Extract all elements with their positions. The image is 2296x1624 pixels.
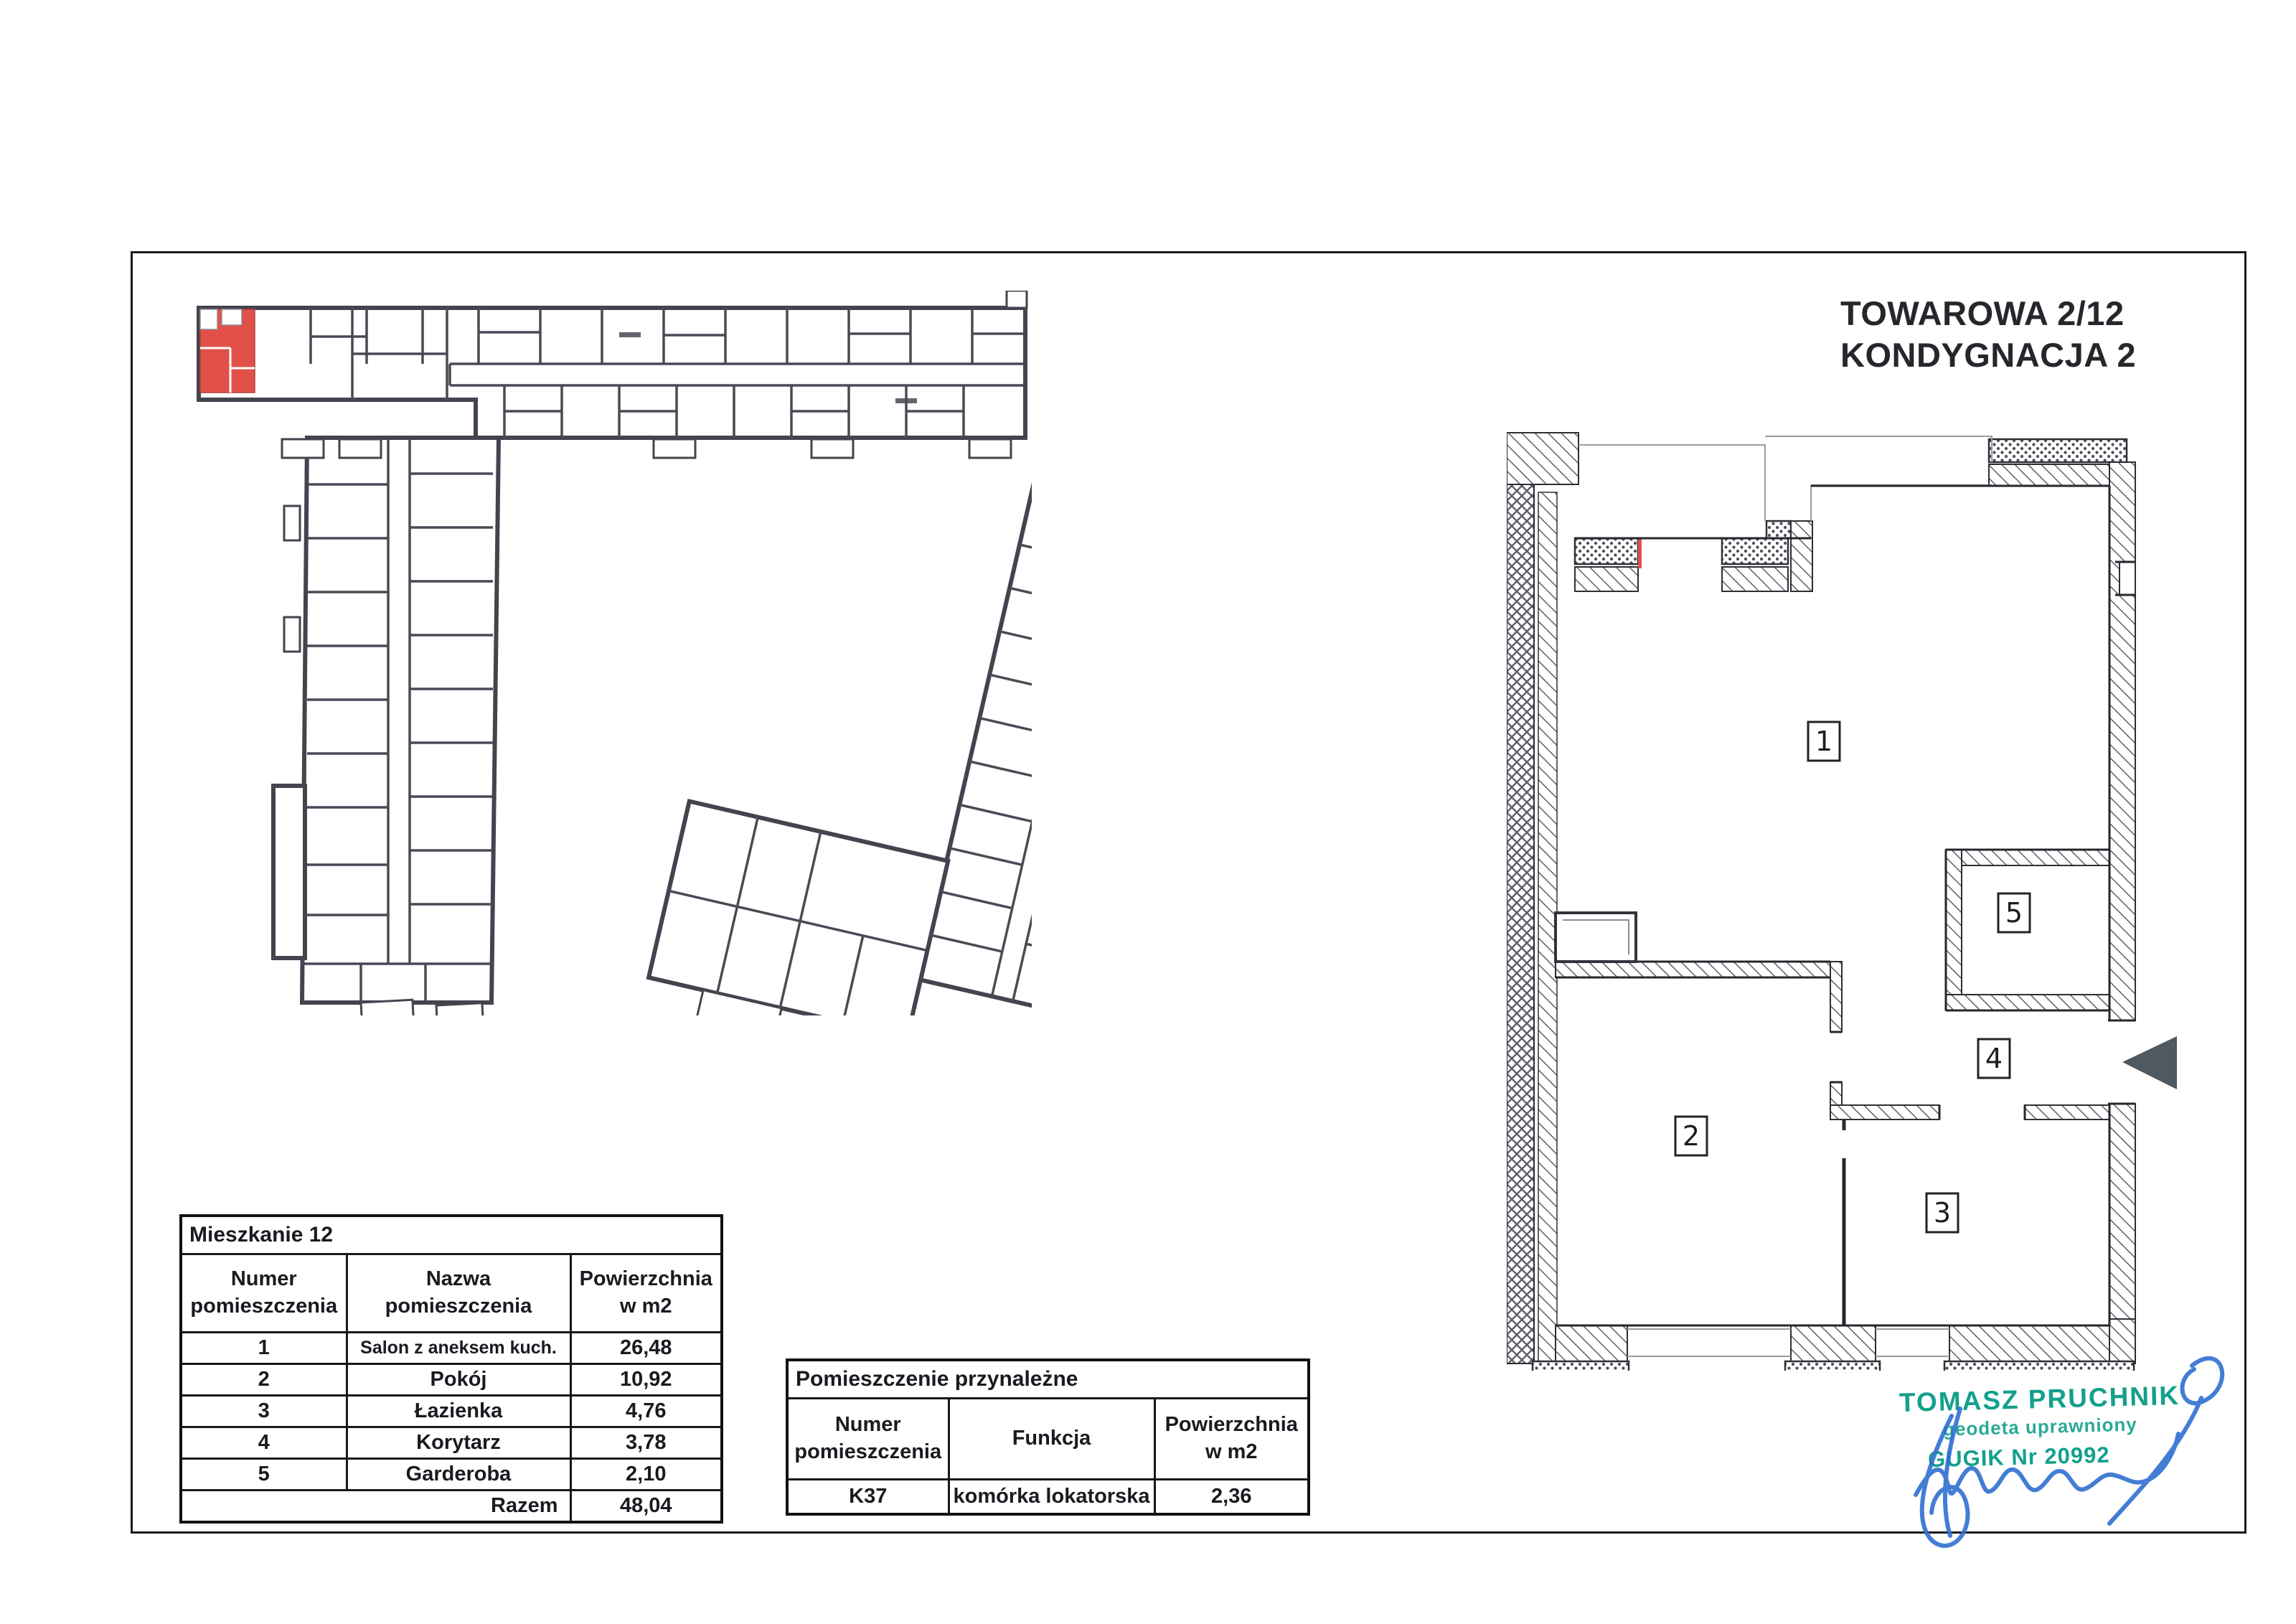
room-number-3: 3	[1926, 1193, 1958, 1232]
wall	[1946, 995, 2109, 1010]
col-header-pow: Powierzchnia w m2	[1154, 1399, 1309, 1480]
signature-scribble	[1865, 1348, 2267, 1585]
svg-text:1: 1	[1815, 726, 1832, 757]
wall	[2109, 1104, 2135, 1319]
cell-pow: 3,78	[570, 1427, 722, 1459]
cell-nazwa: Łazienka	[347, 1396, 570, 1427]
red-jamb-mark	[1638, 538, 1642, 568]
cell-nazwa: Pokój	[347, 1364, 570, 1396]
table-title: Mieszkanie 12	[181, 1216, 722, 1254]
wall	[2109, 462, 2135, 1020]
wall	[1791, 521, 1812, 591]
svg-text:5: 5	[2005, 897, 2023, 929]
svg-text:4: 4	[1985, 1043, 2003, 1074]
wall-recess	[2119, 562, 2135, 595]
col-header-numer: Numer pomieszczenia	[787, 1399, 949, 1480]
wall	[1556, 1325, 1627, 1361]
cell-pow: 2,10	[570, 1459, 722, 1491]
cell-pow: 4,76	[570, 1396, 722, 1427]
wall	[1830, 1105, 1939, 1120]
col-header-pow: Powierzchnia w m2	[570, 1254, 722, 1333]
wall	[1507, 433, 1578, 484]
cell-pow: 2,36	[1154, 1480, 1309, 1515]
cell-pow: 26,48	[570, 1333, 722, 1364]
wall	[2025, 1105, 2109, 1120]
col-header-funkcja: Funkcja	[949, 1399, 1154, 1480]
table-row: 3 Łazienka 4,76	[181, 1396, 722, 1427]
table-total-row: Razem 48,04	[181, 1491, 722, 1523]
window-sill	[1575, 538, 1638, 564]
table-row: 5 Garderoba 2,10	[181, 1459, 722, 1491]
staircase-label-smudge	[895, 398, 917, 403]
cell-nr: 2	[181, 1364, 347, 1396]
wall	[1575, 567, 1638, 591]
razem-label: Razem	[181, 1491, 570, 1523]
shaft-niche	[1556, 913, 1636, 962]
cell-nr: K37	[787, 1480, 949, 1515]
cell-nr: 3	[181, 1396, 347, 1427]
razem-value: 48,04	[570, 1491, 722, 1523]
apartment-rooms-table: Mieszkanie 12 Numer pomieszczenia Nazwa …	[179, 1214, 723, 1524]
ancillary-room-table: Pomieszczenie przynależne Numer pomieszc…	[786, 1358, 1310, 1516]
col-header-nazwa: Nazwa pomieszczenia	[347, 1254, 570, 1333]
wall	[1791, 1325, 1876, 1361]
svg-text:2: 2	[1683, 1120, 1700, 1152]
cell-nr: 4	[181, 1427, 347, 1459]
window-sill	[1722, 538, 1788, 564]
svg-text:3: 3	[1934, 1197, 1951, 1229]
wall	[1989, 464, 2125, 486]
table-row: 2 Pokój 10,92	[181, 1364, 722, 1396]
staircase-label-smudge	[619, 332, 641, 337]
wall	[1946, 850, 1962, 1010]
window-sill	[1766, 521, 1791, 538]
cell-nazwa: Salon z aneksem kuch.	[347, 1333, 570, 1364]
room-number-4: 4	[1978, 1039, 2010, 1078]
table-row: K37 komórka lokatorska 2,36	[787, 1480, 1309, 1515]
col-header-numer: Numer pomieszczenia	[181, 1254, 347, 1333]
cell-nr: 5	[181, 1459, 347, 1491]
title-address: TOWAROWA 2/12	[1840, 293, 2136, 334]
wall	[1556, 962, 1830, 977]
wall	[1507, 484, 1534, 1363]
cell-nazwa: Garderoba	[347, 1459, 570, 1491]
cell-nr: 1	[181, 1333, 347, 1364]
table-row: 1 Salon z aneksem kuch. 26,48	[181, 1333, 722, 1364]
cell-nazwa: Korytarz	[347, 1427, 570, 1459]
wall	[1946, 850, 2109, 865]
table-title: Pomieszczenie przynależne	[787, 1360, 1309, 1399]
entrance-arrow-icon	[2122, 1036, 2177, 1089]
page-title: TOWAROWA 2/12 KONDYGNACJA 2	[1840, 293, 2136, 376]
highlighted-unit	[200, 309, 255, 393]
cell-funkcja: komórka lokatorska	[949, 1480, 1154, 1515]
cell-pow: 10,92	[570, 1364, 722, 1396]
building-overview-plan	[189, 291, 1032, 1015]
room-number-5: 5	[1998, 893, 2030, 932]
window-sill	[1533, 1361, 1629, 1371]
room-number-1: 1	[1808, 722, 1840, 761]
apartment-detail-plan: 1 2 3 4 5	[1507, 431, 2210, 1371]
title-storey: KONDYGNACJA 2	[1840, 334, 2136, 376]
scanned-floor-plan-page: TOWAROWA 2/12 KONDYGNACJA 2	[0, 0, 2296, 1624]
wall	[1722, 567, 1788, 591]
room-number-2: 2	[1675, 1117, 1707, 1155]
window-sill	[1989, 439, 2127, 462]
wall	[1830, 962, 1842, 1032]
table-row: 4 Korytarz 3,78	[181, 1427, 722, 1459]
